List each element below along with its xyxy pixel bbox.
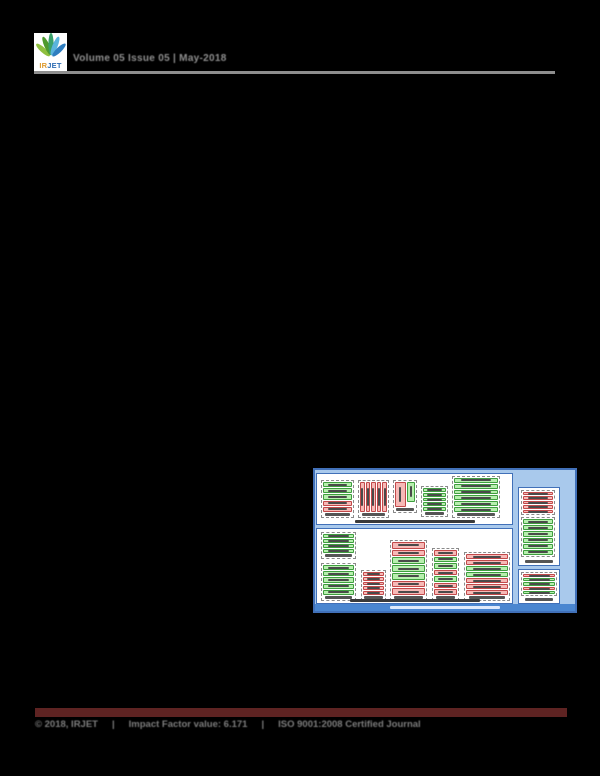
illegible-text-smudge (473, 580, 501, 582)
figure-box-green (523, 582, 555, 585)
figure-box-green (323, 590, 354, 595)
figure-box-pink (377, 482, 382, 512)
figure-box-green (323, 549, 354, 553)
figure-box-green (523, 525, 553, 530)
figure-box-pink (363, 586, 384, 590)
illegible-text-smudge (328, 545, 348, 547)
illegible-text-smudge (438, 552, 453, 554)
figure-box-green (423, 493, 446, 497)
illegible-text-smudge (427, 508, 442, 510)
illegible-text-smudge (528, 506, 548, 508)
figure-group (464, 552, 510, 601)
figure-box-green (323, 577, 354, 582)
illegible-text-smudge (367, 578, 380, 580)
figure-box-pink (392, 588, 425, 595)
illegible-text-smudge (461, 509, 490, 511)
illegible-text-smudge (427, 489, 442, 491)
figure-group (521, 490, 555, 515)
figure-box-pink (523, 505, 553, 508)
figure-box-green (323, 544, 354, 548)
illegible-text-smudge (328, 490, 347, 492)
figure-group (361, 570, 386, 601)
illegible-text-smudge (328, 579, 348, 581)
illegible-text-smudge (461, 503, 490, 505)
figure-box-green (523, 591, 555, 594)
figure-box-green (466, 566, 508, 571)
illegible-text-smudge (398, 544, 420, 546)
illegible-text-smudge (328, 508, 347, 510)
illegible-text-smudge (461, 485, 490, 487)
figure-group-boxes (523, 574, 555, 594)
figure-box-pink (363, 577, 384, 581)
figure-bottom-panel (316, 528, 513, 604)
figure-group (321, 480, 354, 518)
illegible-text-smudge (473, 574, 501, 576)
figure-group-boxes (454, 478, 498, 512)
illegible-text-smudge (427, 503, 442, 505)
figure-box-pink (382, 482, 387, 512)
figure-box-green (423, 507, 446, 511)
figure-box-pink (395, 482, 406, 507)
illegible-text-smudge (529, 592, 550, 594)
illegible-text-smudge (528, 511, 548, 513)
illegible-text-smudge (473, 556, 501, 558)
figure-box-green (392, 565, 425, 572)
figure-box-green (523, 578, 555, 581)
figure-box-green (523, 519, 553, 524)
illegible-text-smudge (398, 575, 420, 577)
illegible-text-smudge (528, 539, 548, 541)
figure-group-boxes (423, 488, 446, 511)
logo-jet-text: JET (47, 61, 61, 70)
figure-group-boxes (323, 565, 354, 595)
figure-group (452, 476, 500, 518)
figure-box-pink (392, 550, 425, 557)
illegible-text-smudge (367, 587, 380, 589)
figure-box-pink (392, 581, 425, 588)
figure-group (321, 532, 356, 559)
illegible-text-smudge (461, 491, 490, 493)
figure-group-boxes (323, 482, 352, 512)
figure-group (393, 480, 417, 513)
figure-box-green (523, 538, 553, 543)
figure-box-green (434, 563, 457, 569)
figure-box-pink (523, 501, 553, 504)
figure-group (421, 486, 448, 517)
illegible-text-smudge (328, 591, 348, 593)
figure-group-boxes (434, 550, 457, 595)
illegible-text-smudge (361, 488, 363, 506)
footer-meta: © 2018, IRJET | Impact Factor value: 6.1… (35, 719, 421, 730)
figure-group-label (362, 513, 385, 516)
paper-page: IRJET Volume 05 Issue 05 | May-2018 © 20… (0, 0, 600, 776)
figure-box-green (392, 573, 425, 580)
figure-box-green (434, 576, 457, 582)
illegible-text-smudge (528, 551, 548, 553)
illegible-text-smudge (438, 585, 453, 587)
illegible-text-smudge (438, 565, 453, 567)
figure-right-bottom-panel (518, 569, 560, 604)
figure-box-green (323, 494, 352, 499)
illegible-text-smudge (528, 527, 548, 529)
figure-box-green (466, 572, 508, 577)
illegible-text-smudge (367, 583, 380, 585)
illegible-text-smudge (473, 568, 501, 570)
figure-box-green (423, 502, 446, 506)
figure-box-green (423, 488, 446, 492)
footer-separator: | (261, 719, 264, 730)
footer-certification: ISO 9001:2008 Certified Journal (278, 719, 421, 730)
figure-box-pink (466, 554, 508, 559)
figure-box-pink (434, 550, 457, 556)
figure-box-pink (466, 578, 508, 583)
illegible-text-smudge (528, 497, 548, 499)
illegible-text-smudge (328, 540, 348, 542)
figure-group-boxes (363, 572, 384, 595)
illegible-text-smudge (328, 550, 348, 552)
figure-caption (350, 599, 480, 602)
figure-box-pink (434, 570, 457, 576)
figure-group (521, 572, 557, 596)
figure-title-bar (315, 604, 575, 611)
figure-box-pink (363, 591, 384, 595)
header-divider (34, 71, 555, 74)
figure-box-pink (363, 572, 384, 576)
illegible-text-smudge (528, 533, 548, 535)
illegible-text-smudge (398, 591, 420, 593)
figure-box-green (523, 544, 553, 549)
illegible-text-smudge (528, 493, 548, 495)
figure-box-pink (323, 507, 352, 512)
illegible-text-smudge (438, 578, 453, 580)
figure-box-green (523, 531, 553, 536)
figure-box-green (454, 490, 498, 495)
figure-group (432, 548, 459, 601)
illegible-text-smudge (427, 499, 442, 501)
illegible-text-smudge (438, 558, 453, 560)
figure-group-label (396, 508, 413, 511)
figure-box-green (454, 495, 498, 500)
figure-group (321, 563, 356, 601)
figure-cloud-framework (313, 468, 577, 613)
illegible-text-smudge (427, 494, 442, 496)
illegible-text-smudge (461, 479, 490, 481)
illegible-text-smudge (328, 502, 347, 504)
figure-box-green (392, 557, 425, 564)
illegible-text-smudge (528, 502, 548, 504)
irjet-logo-text: IRJET (34, 62, 67, 70)
illegible-text-smudge (473, 586, 501, 588)
illegible-text-smudge (398, 568, 420, 570)
figure-group-boxes (395, 482, 415, 507)
figure-title-text-smudge (390, 606, 500, 609)
illegible-text-smudge (328, 535, 348, 537)
illegible-text-smudge (384, 488, 386, 506)
figure-box-green (323, 482, 352, 487)
illegible-text-smudge (328, 496, 347, 498)
illegible-text-smudge (328, 585, 348, 587)
figure-group (390, 540, 427, 601)
figure-box-green (323, 534, 354, 538)
figure-box-pink (363, 582, 384, 586)
figure-box-pink (523, 496, 553, 499)
illegible-text-smudge (398, 583, 420, 585)
figure-group-boxes (392, 542, 425, 595)
figure-box-green (407, 482, 415, 502)
illegible-text-smudge (378, 488, 380, 506)
footer-bar (35, 708, 567, 717)
figure-box-green (523, 550, 553, 555)
figure-box-pink (434, 589, 457, 595)
figure-group-label (425, 512, 445, 515)
figure-box-green (454, 484, 498, 489)
figure-panel-label (525, 598, 553, 601)
illegible-text-smudge (398, 560, 420, 562)
figure-box-green (323, 584, 354, 589)
figure-group-boxes (323, 534, 354, 553)
illegible-text-smudge (461, 497, 490, 499)
figure-box-pink (392, 542, 425, 549)
figure-group (521, 517, 555, 557)
figure-group-boxes (466, 554, 508, 595)
illegible-text-smudge (529, 575, 550, 577)
figure-box-pink (523, 574, 555, 577)
figure-group-label (325, 554, 352, 557)
figure-box-green (323, 539, 354, 543)
figure-box-pink (466, 560, 508, 565)
figure-group-label (325, 513, 350, 516)
figure-box-pink (366, 482, 371, 512)
figure-right-top-panel (518, 487, 560, 566)
figure-box-pink (523, 587, 555, 590)
irjet-logo: IRJET (34, 33, 67, 71)
figure-group-boxes (523, 519, 553, 555)
figure-group-label (457, 513, 495, 516)
figure-group-label (325, 596, 352, 599)
illegible-text-smudge (473, 592, 501, 594)
figure-box-green (454, 507, 498, 512)
illegible-text-smudge (529, 588, 550, 590)
figure-box-green (323, 488, 352, 493)
illegible-text-smudge (528, 545, 548, 547)
illegible-text-smudge (528, 521, 548, 523)
figure-box-pink (323, 501, 352, 506)
illegible-text-smudge (372, 488, 374, 506)
illegible-text-smudge (438, 572, 453, 574)
figure-group (358, 480, 389, 518)
volume-issue-date: Volume 05 Issue 05 | May-2018 (73, 53, 227, 64)
illegible-text-smudge (328, 484, 347, 486)
figure-box-pink (523, 492, 553, 495)
figure-group-boxes (360, 482, 387, 512)
illegible-text-smudge (529, 579, 550, 581)
figure-box-pink (466, 584, 508, 589)
illegible-text-smudge (438, 591, 453, 593)
figure-box-green (454, 478, 498, 483)
illegible-text-smudge (367, 573, 380, 575)
illegible-text-smudge (529, 583, 550, 585)
figure-top-panel (316, 473, 513, 525)
figure-panel-label (525, 560, 553, 563)
figure-caption (355, 520, 475, 523)
footer-impact-factor: Impact Factor value: 6.171 (129, 719, 248, 730)
figure-box-green (454, 501, 498, 506)
illegible-text-smudge (328, 567, 348, 569)
figure-box-pink (434, 583, 457, 589)
illegible-text-smudge (473, 562, 501, 564)
footer-copyright: © 2018, IRJET (35, 719, 98, 730)
illegible-text-smudge (367, 592, 380, 594)
figure-box-green (323, 565, 354, 570)
illegible-text-smudge (328, 573, 348, 575)
illegible-text-smudge (367, 488, 369, 506)
figure-box-green (423, 498, 446, 502)
figure-box-green (323, 571, 354, 576)
figure-box-pink (466, 590, 508, 595)
figure-box-pink (371, 482, 376, 512)
figure-box-pink (523, 510, 553, 513)
illegible-text-smudge (398, 552, 420, 554)
figure-group-boxes (523, 492, 553, 513)
figure-box-pink (360, 482, 365, 512)
illegible-text-smudge (399, 487, 401, 502)
footer-separator: | (112, 719, 115, 730)
illegible-text-smudge (410, 486, 412, 497)
figure-box-green (434, 557, 457, 563)
